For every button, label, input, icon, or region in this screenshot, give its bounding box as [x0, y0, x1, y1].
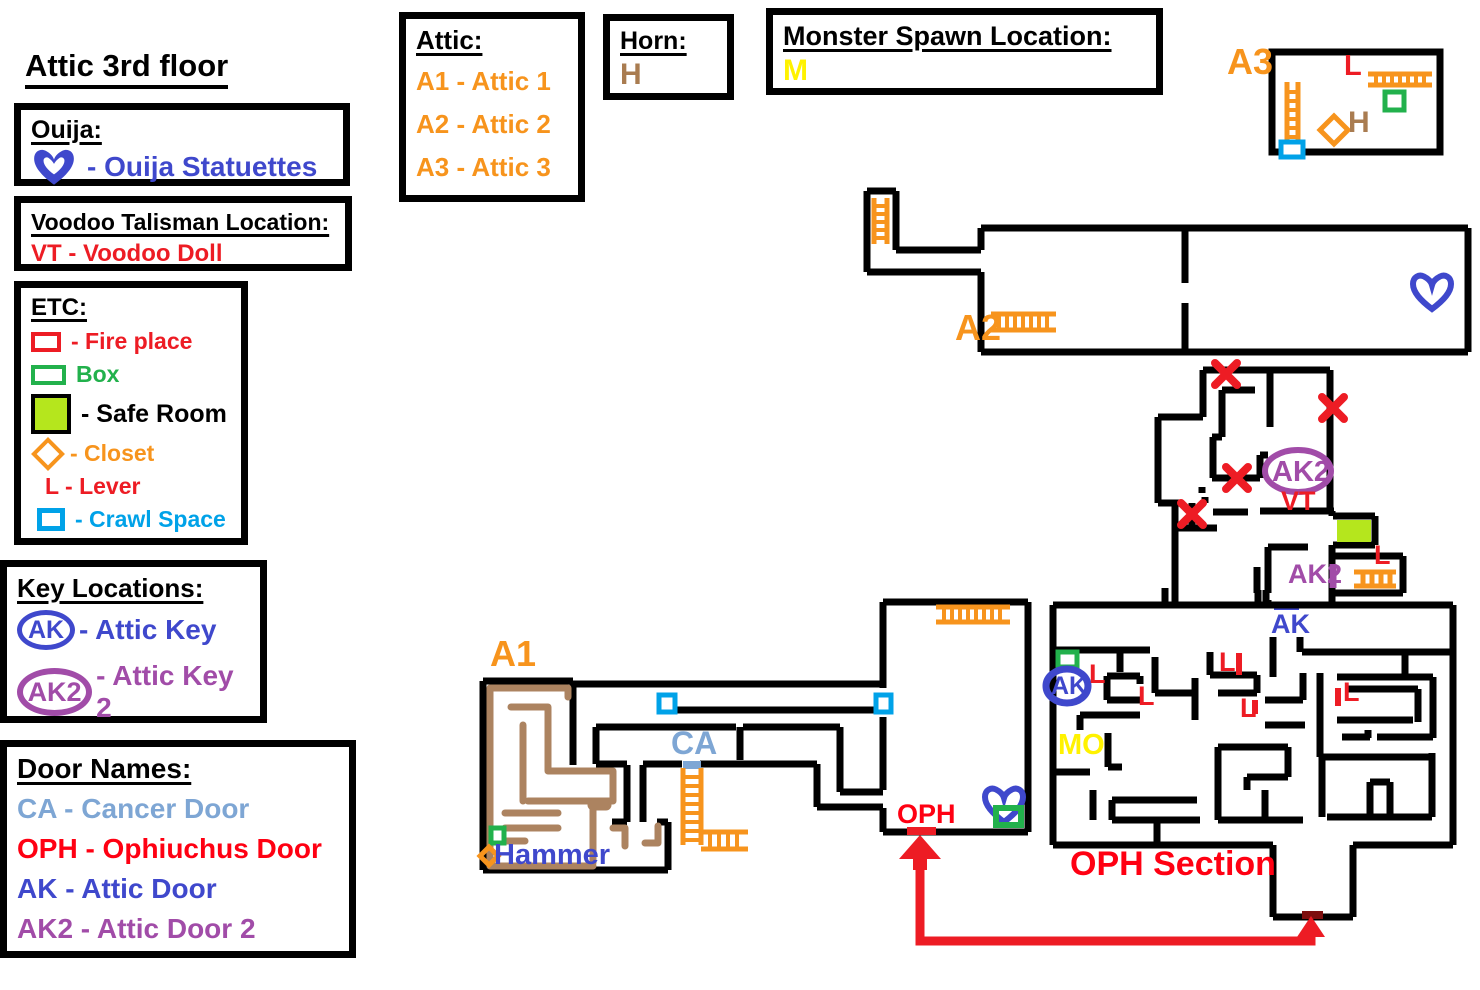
ouija-heading: Ouija:: [31, 116, 333, 145]
oph-room: [883, 602, 1028, 832]
lever-label-oph4: L: [1240, 695, 1257, 722]
a2-room-walls: [981, 228, 1468, 352]
ouija-legend-box: Ouija: - Ouija Statuettes: [14, 103, 350, 186]
door-oph: OPH - Ophiuchus Door: [17, 833, 339, 865]
safe-room-label: - Safe Room: [81, 400, 227, 429]
doors-legend-box: Door Names: CA - Cancer Door OPH - Ophiu…: [0, 740, 356, 958]
safe-room-icon: [1337, 520, 1371, 542]
lever-label-a3: L: [1344, 52, 1362, 81]
door-ak2: AK2 - Attic Door 2: [17, 913, 339, 945]
up-arrow-icon: [899, 835, 941, 859]
attic-a3: A3 - Attic 3: [416, 152, 568, 183]
lever-label: L - Lever: [45, 473, 140, 500]
doors-heading: Door Names:: [17, 753, 339, 785]
monster-entry: M: [783, 54, 1146, 88]
attic-a1: A1 - Attic 1: [416, 66, 568, 97]
ouija-entry: - Ouija Statuettes: [87, 151, 317, 183]
mo-label: MO: [1058, 731, 1105, 760]
box-label: Box: [76, 361, 119, 388]
ouija-heart-icon: [31, 147, 77, 187]
ak-key-badge: AK: [17, 610, 75, 650]
closet-icon: [31, 437, 65, 471]
monster-heading: Monster Spawn Location:: [783, 21, 1146, 52]
ak2-key-map-label: AK2: [1272, 458, 1330, 487]
vt-label: VT: [1281, 488, 1316, 515]
voodoo-entry: VT - Voodoo Doll: [31, 240, 335, 268]
voodoo-heading: Voodoo Talisman Location:: [31, 209, 335, 236]
closet-icon: [1320, 116, 1348, 144]
keys-heading: Key Locations:: [17, 573, 250, 604]
attic-legend-box: Attic: A1 - Attic 1 A2 - Attic 2 A3 - At…: [399, 12, 585, 202]
ladder-icon: [683, 768, 701, 845]
door-ak: AK - Attic Door: [17, 873, 339, 905]
a1-label: A1: [490, 636, 536, 672]
lever-label-ak2room: L: [1374, 542, 1391, 569]
ladder-rungs: [999, 314, 1047, 330]
ouija-heart-icon: [1413, 276, 1451, 309]
voodoo-legend-box: Voodoo Talisman Location: VT - Voodoo Do…: [14, 196, 352, 271]
page-title: Attic 3rd floor: [25, 48, 228, 84]
safe-room-icon: [31, 394, 71, 434]
ak-door-label: AK: [1271, 611, 1310, 638]
oph-section-label: OPH Section: [1070, 847, 1276, 881]
ak2-door-label: AK2: [1288, 561, 1342, 588]
a2-label: A2: [955, 310, 1001, 346]
ladder-rungs: [1376, 74, 1424, 85]
fireplace-label: - Fire place: [71, 328, 192, 355]
a3-label: A3: [1227, 44, 1273, 80]
etc-heading: ETC:: [31, 294, 231, 322]
horn-legend-box: Horn: H: [603, 14, 734, 100]
ak-key-map-label: AK: [1051, 674, 1087, 699]
ak-key-label: - Attic Key: [79, 614, 216, 646]
ca-door-label: CA: [671, 727, 717, 759]
ak2-key-badge: AK2: [17, 668, 92, 716]
ladder-rungs: [710, 832, 737, 849]
box-icon: [1385, 92, 1404, 110]
oph-door-label: OPH: [897, 801, 956, 828]
red-x-icon: [1215, 363, 1237, 385]
lever-label-oph1: L: [1089, 661, 1106, 688]
door-ca: CA - Cancer Door: [17, 793, 339, 825]
lever-label-oph3: L: [1219, 649, 1236, 676]
crawl-space-icon: [1281, 142, 1303, 157]
horn-entry: H: [620, 58, 717, 92]
keys-legend-box: Key Locations: AK - Attic Key AK2 - Atti…: [0, 560, 267, 723]
box-icon: [31, 365, 66, 385]
crawl-space-icon: [876, 695, 891, 712]
ladder-rungs: [683, 777, 701, 840]
etc-legend-box: ETC: - Fire place Box - Safe Room - Clos…: [14, 281, 248, 545]
attic-map-page: { "title": "Attic 3rd floor", "boxes": {…: [0, 0, 1480, 990]
ak2-key-label: - Attic Key 2: [96, 660, 250, 724]
crawl-space-icon: [659, 695, 675, 712]
lever-label-oph2: L: [1138, 683, 1155, 710]
attic-a2: A2 - Attic 2: [416, 109, 568, 140]
crawl-space-icon: [37, 508, 65, 531]
hammer-label: Hammer: [494, 841, 610, 870]
oph-maze-inner-walls: [1053, 637, 1453, 845]
box-icon: [1058, 652, 1077, 667]
h-horn-label: H: [1348, 108, 1370, 138]
horn-heading: Horn:: [620, 27, 717, 56]
lever-label-oph5: L: [1343, 679, 1360, 706]
monster-legend-box: Monster Spawn Location: M: [766, 8, 1163, 95]
fireplace-icon: [31, 332, 61, 352]
closet-label: - Closet: [70, 440, 154, 467]
attic-heading: Attic:: [416, 25, 568, 56]
crawl-space-label: - Crawl Space: [75, 506, 226, 533]
